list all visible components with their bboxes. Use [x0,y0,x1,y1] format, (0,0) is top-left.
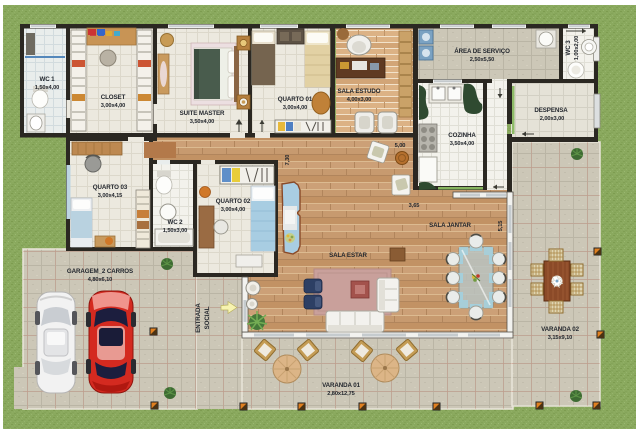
svg-text:SALA ESTUDO: SALA ESTUDO [337,88,380,95]
svg-text:WC 1: WC 1 [39,76,55,83]
svg-text:COZINHA: COZINHA [448,132,476,139]
svg-text:1,50x3,00: 1,50x3,00 [163,228,187,234]
svg-text:1,50x4,00: 1,50x4,00 [35,85,59,91]
svg-text:GARAGEM_2 CARROS: GARAGEM_2 CARROS [67,268,133,275]
svg-text:4,80x6,10: 4,80x6,10 [88,277,112,283]
svg-text:VARANDA 02: VARANDA 02 [541,326,580,333]
svg-text:VARANDA 01: VARANDA 01 [322,382,361,389]
svg-text:DESPENSA: DESPENSA [534,107,568,114]
svg-text:WC 3: WC 3 [565,40,572,56]
svg-text:3,00x4,00: 3,00x4,00 [221,207,245,213]
svg-text:ÁREA DE SERVIÇO: ÁREA DE SERVIÇO [454,48,510,55]
svg-text:QUARTO 03: QUARTO 03 [93,184,128,191]
svg-text:2,50x5,50: 2,50x5,50 [470,57,494,63]
svg-text:5,15: 5,15 [498,221,504,232]
svg-text:2,00x3,00: 2,00x3,00 [540,116,564,122]
svg-text:WC 2: WC 2 [167,219,183,226]
svg-text:3,00x4,15: 3,00x4,15 [98,193,122,199]
svg-text:3,00x4,00: 3,00x4,00 [101,103,125,109]
svg-text:QUARTO 01: QUARTO 01 [278,96,313,103]
svg-text:ENTRADA: ENTRADA [195,303,202,333]
svg-text:5,00: 5,00 [395,143,406,149]
svg-text:1,00x2,00: 1,00x2,00 [574,36,580,60]
svg-text:7,30: 7,30 [285,155,291,166]
svg-text:2,80x12,75: 2,80x12,75 [327,391,354,397]
svg-text:SOCIAL: SOCIAL [204,306,211,329]
svg-text:3,00x4,00: 3,00x4,00 [283,105,307,111]
svg-text:SUITE MASTER: SUITE MASTER [180,110,225,117]
svg-text:3,50x4,00: 3,50x4,00 [450,141,474,147]
svg-text:4,00x3,00: 4,00x3,00 [347,97,371,103]
svg-text:3,65: 3,65 [409,203,420,209]
svg-text:3,15x9,10: 3,15x9,10 [548,335,572,341]
svg-text:3,50x4,00: 3,50x4,00 [190,119,214,125]
svg-text:QUARTO 02: QUARTO 02 [216,198,251,205]
svg-text:CLOSET: CLOSET [101,94,126,101]
svg-text:SALA ESTAR: SALA ESTAR [329,252,367,259]
svg-text:SALA JANTAR: SALA JANTAR [429,222,471,229]
